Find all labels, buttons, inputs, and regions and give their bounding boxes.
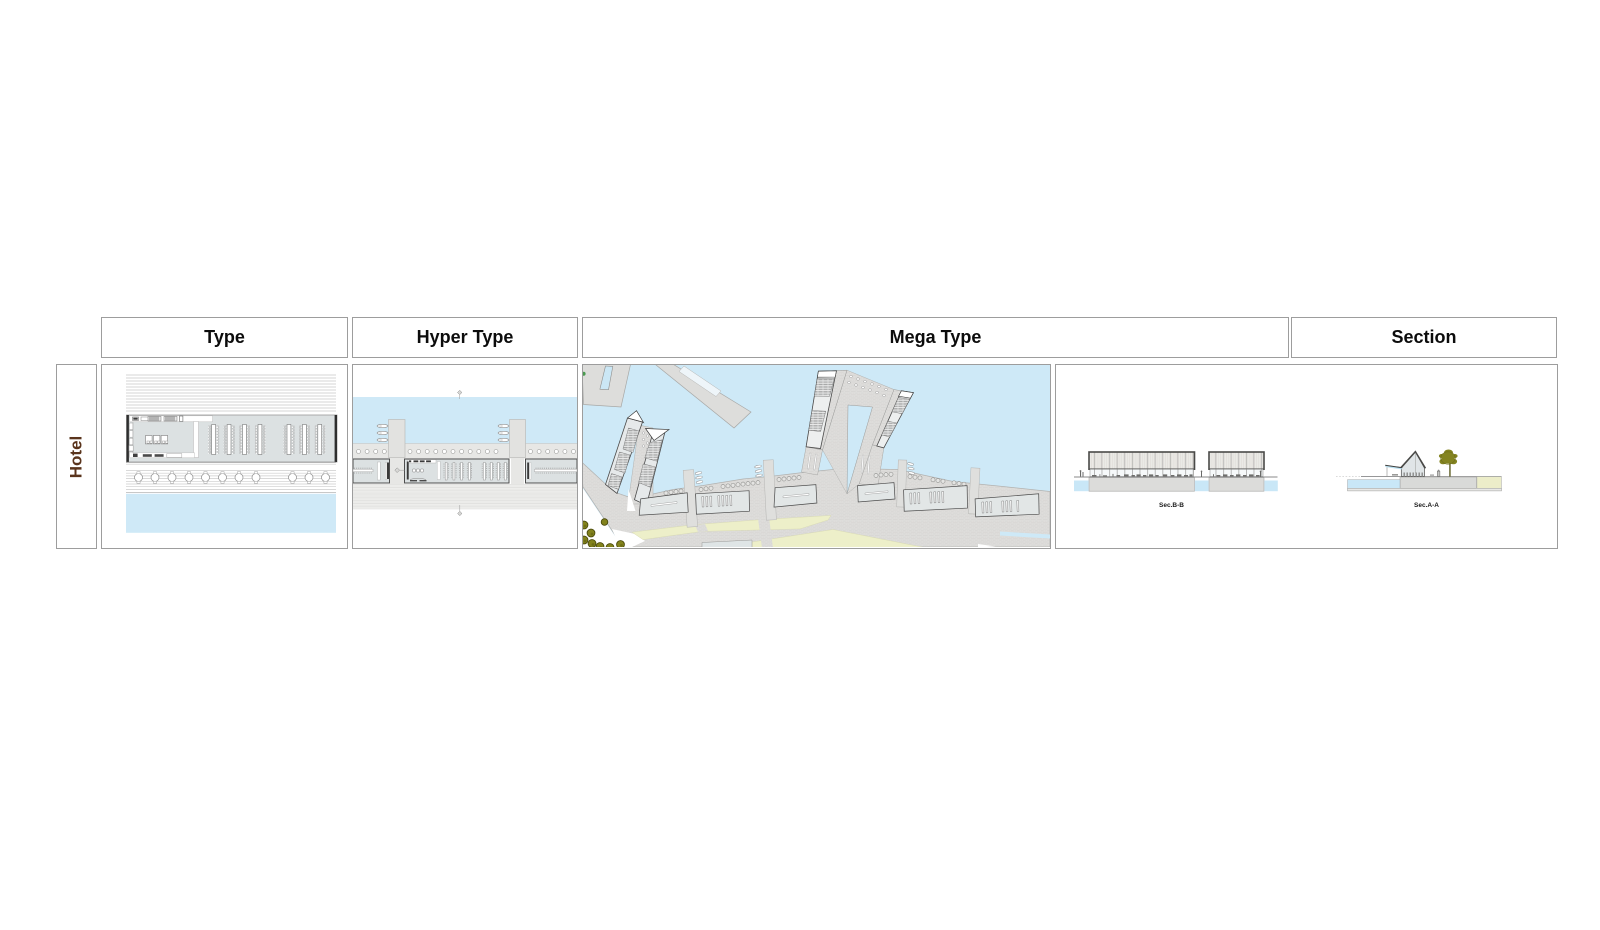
svg-text:Sec.B-B: Sec.B-B xyxy=(1159,502,1184,509)
svg-text:Sec.A-A: Sec.A-A xyxy=(1414,502,1439,509)
